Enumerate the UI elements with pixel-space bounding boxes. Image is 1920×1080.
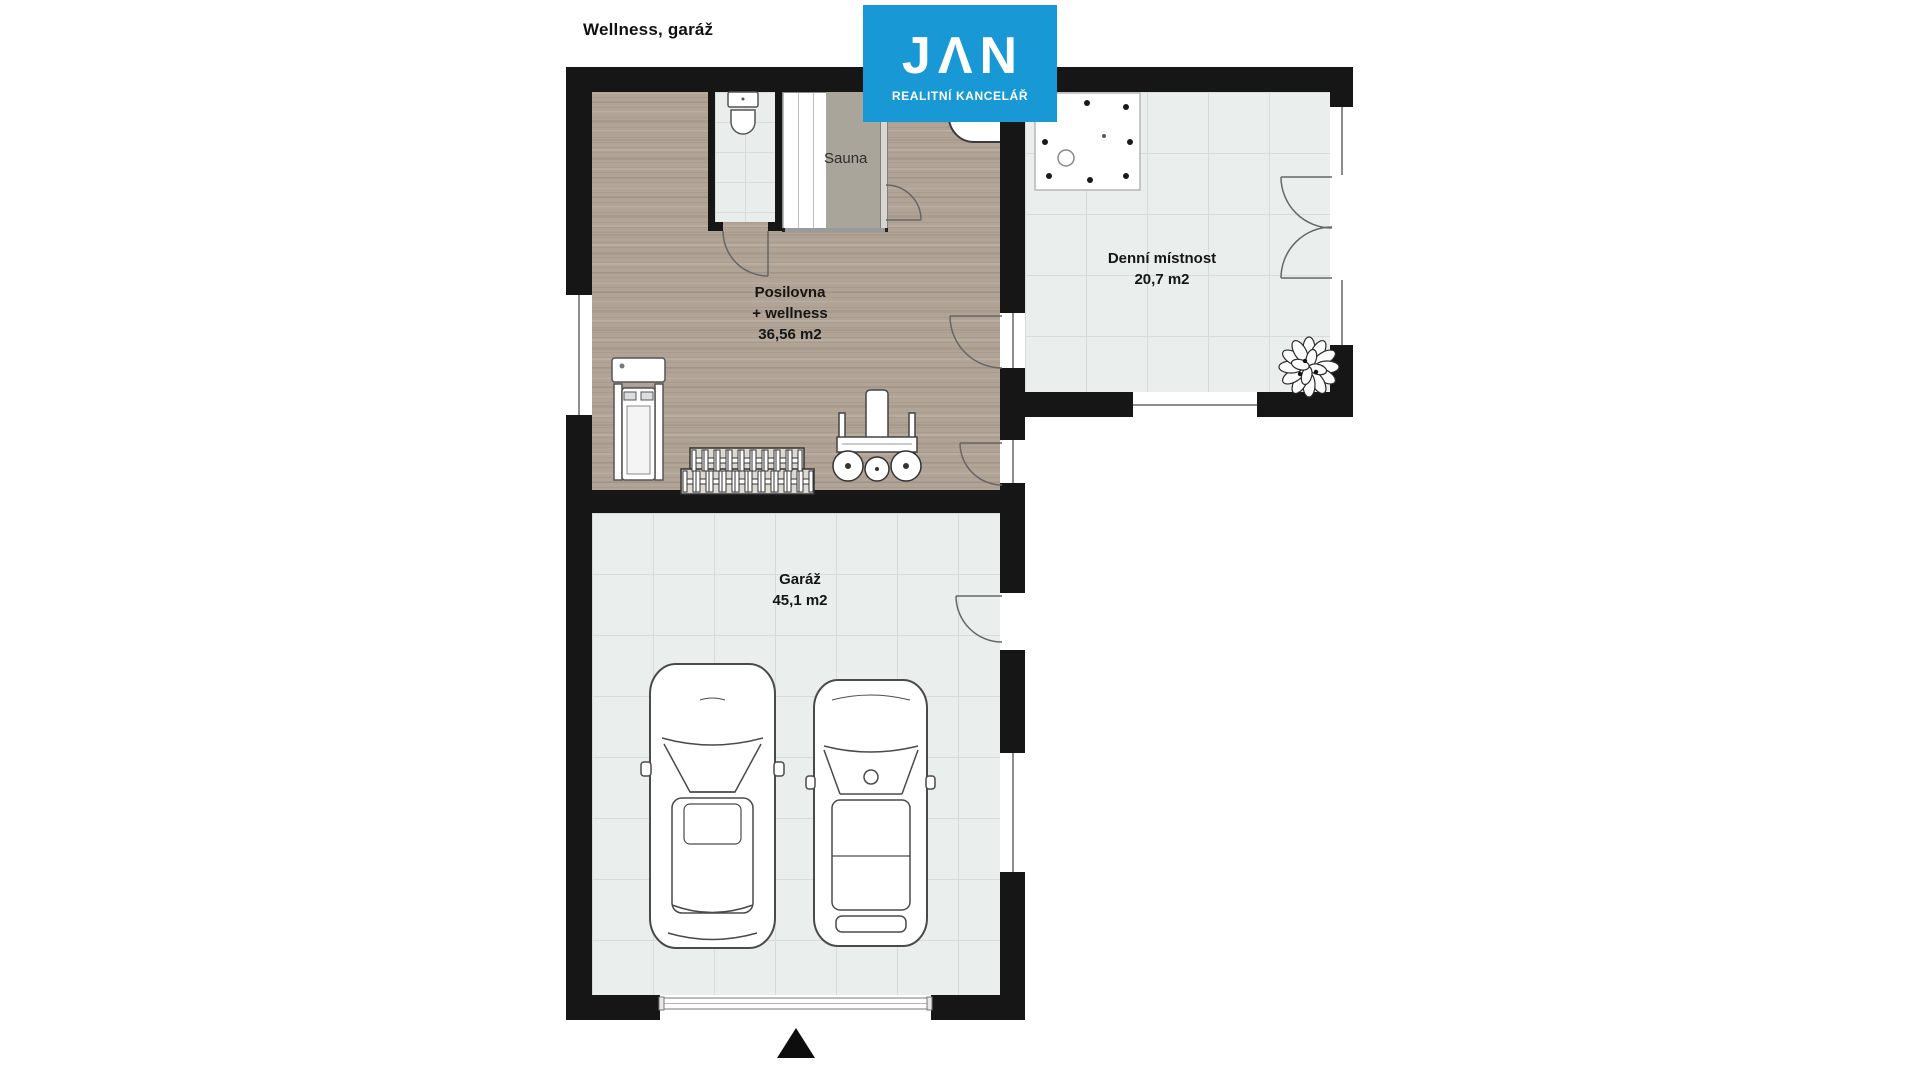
room-area: 45,1 m2 xyxy=(700,590,900,611)
door-sauna xyxy=(886,185,921,220)
brand-logo: JΛN REALITNÍ KANCELÁŘ xyxy=(863,5,1057,122)
brand-subtitle: REALITNÍ KANCELÁŘ xyxy=(892,89,1028,103)
room-label-garage: Garáž 45,1 m2 xyxy=(700,569,900,611)
room-name: Garáž xyxy=(700,569,900,590)
room-name-line2: + wellness xyxy=(690,303,890,324)
room-area: 36,56 m2 xyxy=(690,324,890,345)
door-wc xyxy=(723,231,768,276)
brand-name: JΛN xyxy=(902,30,1024,82)
north-arrow-icon xyxy=(777,1028,815,1058)
toilet-icon xyxy=(728,92,758,134)
dumbbell-rack-icon xyxy=(681,448,814,494)
door-terrace xyxy=(960,443,1002,485)
car-small-icon xyxy=(806,680,935,946)
room-name: Denní místnost xyxy=(1062,248,1262,269)
room-label-living: Denní místnost 20,7 m2 xyxy=(1062,248,1262,290)
bench-press-icon xyxy=(833,390,921,481)
room-name: Posilovna xyxy=(690,282,890,303)
room-area: 20,7 m2 xyxy=(1062,269,1262,290)
plan-overlay xyxy=(560,60,1370,1070)
floor-plan-page: Wellness, garáž xyxy=(0,0,1920,1080)
room-label-sauna: Sauna xyxy=(824,150,867,167)
plant-icon xyxy=(1279,337,1339,397)
door-garage-entry xyxy=(956,596,1002,642)
door-living xyxy=(950,316,1002,368)
page-title: Wellness, garáž xyxy=(583,20,713,40)
treadmill-icon xyxy=(612,358,665,480)
french-door xyxy=(1281,177,1332,278)
car-large-icon xyxy=(641,664,784,948)
garage-door xyxy=(659,997,932,1010)
room-label-wellness: Posilovna + wellness 36,56 m2 xyxy=(690,282,890,345)
